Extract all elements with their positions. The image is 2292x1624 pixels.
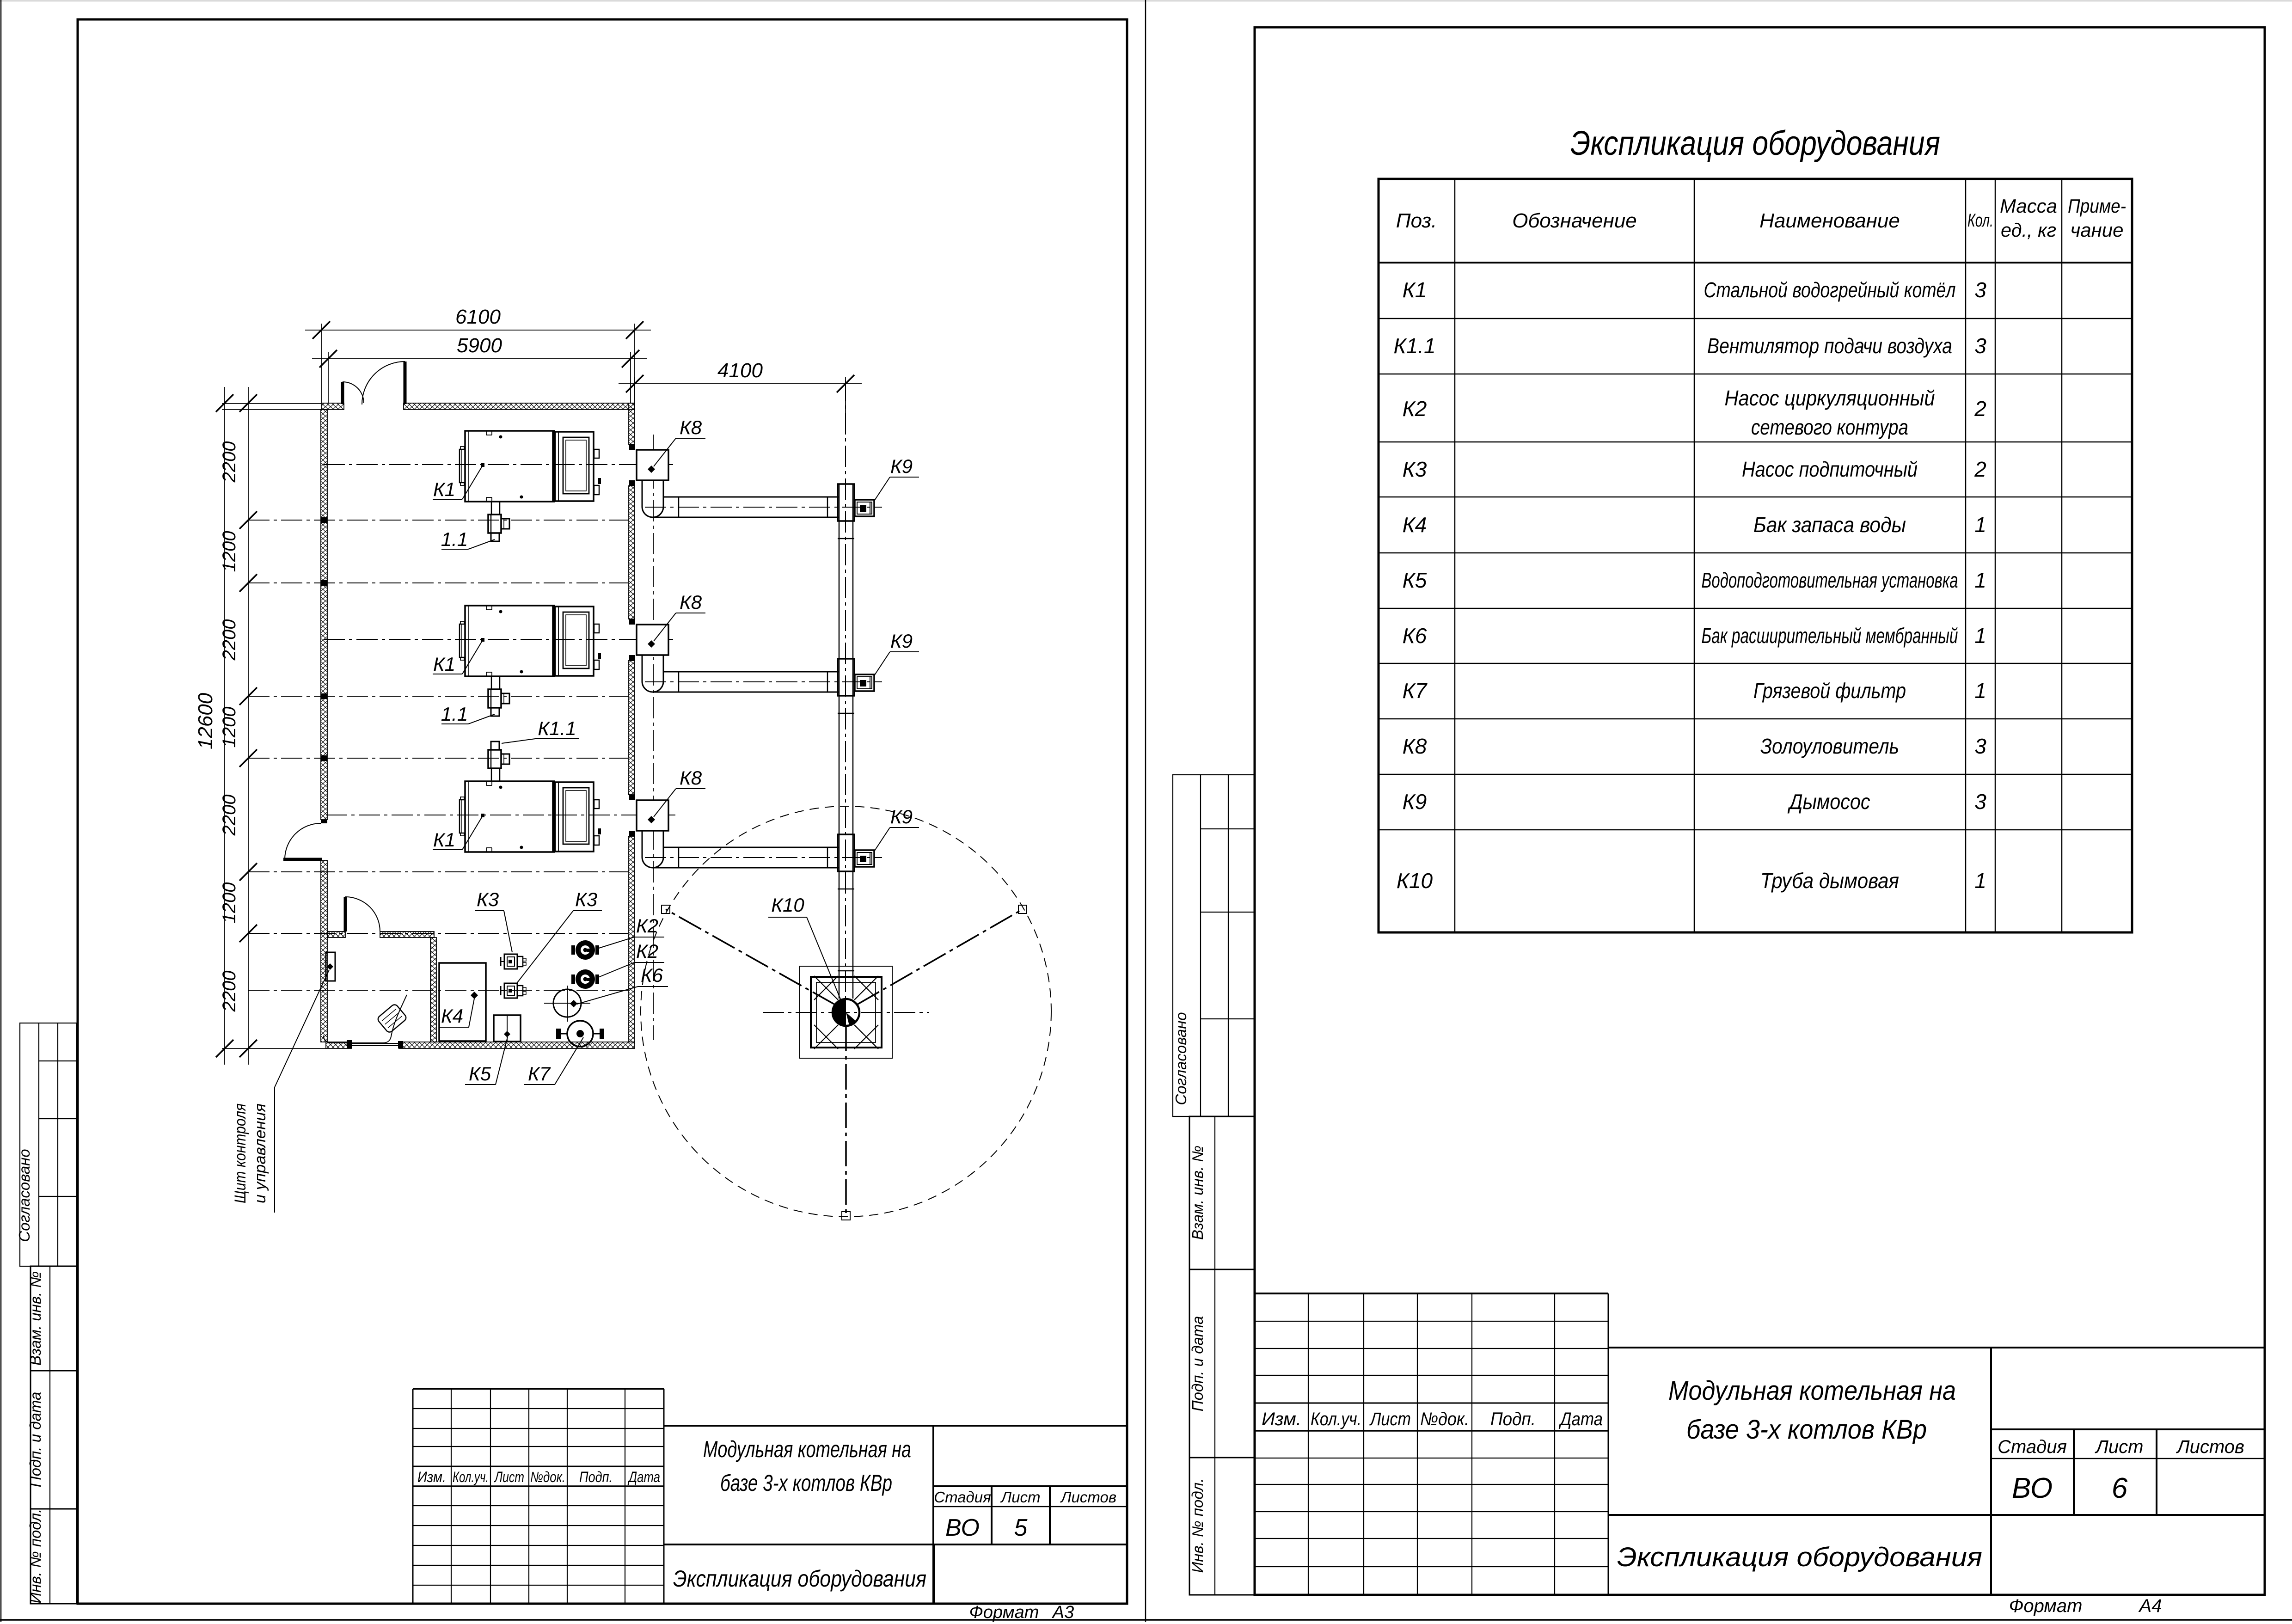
- svg-text:К5: К5: [469, 1063, 491, 1085]
- svg-text:ед., кг: ед., кг: [2001, 219, 2056, 241]
- svg-text:К7: К7: [1403, 679, 1428, 703]
- svg-text:Масса: Масса: [2000, 195, 2057, 217]
- svg-text:базе 3-х котлов КВр: базе 3-х котлов КВр: [1686, 1415, 1927, 1445]
- svg-text:Подп.: Подп.: [1490, 1409, 1536, 1429]
- svg-text:Подп. и дата: Подп. и дата: [1189, 1316, 1206, 1412]
- svg-text:3: 3: [1974, 734, 1986, 758]
- svg-text:Бак запаса воды: Бак запаса воды: [1753, 513, 1906, 537]
- svg-text:Золоуловитель: Золоуловитель: [1760, 734, 1899, 758]
- svg-text:Стадия: Стадия: [934, 1489, 991, 1506]
- svg-text:Лист: Лист: [494, 1469, 524, 1485]
- svg-text:1: 1: [1974, 568, 1986, 592]
- svg-text:Поз.: Поз.: [1396, 209, 1437, 232]
- svg-text:Труба дымовая: Труба дымовая: [1760, 869, 1899, 893]
- svg-text:Согласовано: Согласовано: [16, 1149, 33, 1242]
- svg-text:1200: 1200: [219, 882, 239, 924]
- svg-text:Листов: Листов: [2176, 1437, 2244, 1457]
- svg-text:К2: К2: [636, 940, 658, 962]
- svg-text:К4: К4: [1403, 513, 1427, 537]
- svg-text:К1.1: К1.1: [1393, 334, 1435, 358]
- svg-text:Изм.: Изм.: [417, 1469, 446, 1485]
- svg-text:К9: К9: [1403, 790, 1427, 814]
- svg-text:Водоподготовительная установка: Водоподготовительная установка: [1702, 568, 1958, 592]
- svg-text:ВО: ВО: [2012, 1472, 2053, 1504]
- svg-text:Лист: Лист: [1369, 1409, 1411, 1429]
- svg-text:Кол.уч.: Кол.уч.: [1311, 1409, 1361, 1429]
- svg-text:К3: К3: [575, 889, 597, 910]
- svg-text:К5: К5: [1403, 568, 1427, 592]
- svg-text:К1.1: К1.1: [538, 717, 576, 739]
- svg-text:12600: 12600: [194, 692, 217, 749]
- svg-text:Щит контроля: Щит контроля: [232, 1103, 249, 1203]
- svg-text:базе 3-х котлов КВр: базе 3-х котлов КВр: [720, 1470, 892, 1496]
- svg-text:1.1: 1.1: [441, 703, 468, 725]
- svg-text:А4: А4: [2139, 1596, 2162, 1616]
- svg-text:Модульная котельная на: Модульная котельная на: [703, 1436, 911, 1462]
- svg-text:чание: чание: [2071, 219, 2124, 241]
- svg-text:Формат: Формат: [969, 1603, 1039, 1622]
- svg-text:К6: К6: [1403, 624, 1427, 648]
- svg-text:Дымосос: Дымосос: [1787, 790, 1870, 814]
- svg-text:2200: 2200: [219, 971, 239, 1012]
- svg-text:1: 1: [1974, 624, 1986, 648]
- svg-text:3: 3: [1974, 278, 1986, 302]
- svg-text:Кол.уч.: Кол.уч.: [453, 1469, 489, 1485]
- svg-text:1: 1: [1974, 869, 1986, 893]
- svg-text:Наименование: Наименование: [1759, 209, 1900, 232]
- svg-text:3: 3: [1974, 790, 1986, 814]
- svg-text:Экспликация оборудования: Экспликация оборудования: [673, 1566, 926, 1592]
- svg-text:Стальной водогрейный котёл: Стальной водогрейный котёл: [1704, 278, 1956, 302]
- svg-text:Насос циркуляционный: Насос циркуляционный: [1725, 386, 1935, 410]
- svg-text:Инв. № подл.: Инв. № подл.: [27, 1509, 44, 1604]
- svg-text:Взам. инв. №: Взам. инв. №: [27, 1271, 44, 1366]
- svg-text:5: 5: [1014, 1514, 1028, 1541]
- svg-text:Лист: Лист: [2095, 1437, 2144, 1457]
- svg-text:Экспликация оборудования: Экспликация оборудования: [1570, 124, 1940, 162]
- svg-text:Обозначение: Обозначение: [1512, 209, 1637, 232]
- svg-text:Вентилятор подачи воздуха: Вентилятор подачи воздуха: [1707, 334, 1952, 358]
- svg-text:К10: К10: [771, 894, 804, 916]
- svg-text:Взам. инв. №: Взам. инв. №: [1189, 1146, 1206, 1240]
- svg-text:Дата: Дата: [1559, 1409, 1603, 1429]
- svg-text:Листов: Листов: [1060, 1489, 1116, 1506]
- svg-text:1200: 1200: [219, 531, 239, 572]
- svg-text:6100: 6100: [455, 306, 501, 328]
- svg-text:6: 6: [2112, 1472, 2128, 1504]
- svg-text:Экспликация оборудования: Экспликация оборудования: [1617, 1542, 1982, 1572]
- svg-text:Грязевой фильтр: Грязевой фильтр: [1753, 679, 1906, 703]
- svg-text:Подп.: Подп.: [579, 1469, 613, 1485]
- svg-text:2: 2: [1974, 397, 1986, 421]
- svg-text:№док.: №док.: [1420, 1409, 1469, 1429]
- svg-text:3: 3: [1974, 334, 1986, 358]
- svg-text:2200: 2200: [219, 619, 239, 661]
- svg-text:№док.: №док.: [530, 1469, 565, 1485]
- svg-text:ВО: ВО: [945, 1514, 980, 1541]
- svg-text:К4: К4: [441, 1005, 463, 1027]
- svg-text:4100: 4100: [717, 359, 763, 382]
- svg-text:2200: 2200: [219, 441, 239, 483]
- svg-text:К6: К6: [641, 964, 663, 986]
- svg-text:К3: К3: [1403, 457, 1427, 481]
- svg-text:2200: 2200: [219, 795, 239, 836]
- svg-text:2: 2: [1974, 457, 1986, 481]
- svg-text:Дата: Дата: [628, 1469, 660, 1485]
- svg-text:К1: К1: [1403, 278, 1427, 302]
- svg-text:5900: 5900: [457, 334, 502, 357]
- svg-text:Насос подпиточный: Насос подпиточный: [1742, 457, 1918, 481]
- svg-text:Кол.: Кол.: [1967, 210, 1993, 231]
- svg-text:и управления: и управления: [251, 1103, 269, 1203]
- svg-text:Бак расширительный мембранный: Бак расширительный мембранный: [1702, 624, 1958, 648]
- svg-text:Подп. и дата: Подп. и дата: [27, 1392, 44, 1488]
- svg-text:К3: К3: [477, 889, 499, 910]
- svg-text:К8: К8: [1403, 734, 1427, 758]
- svg-text:1.1: 1.1: [441, 528, 468, 550]
- svg-text:Стадия: Стадия: [1998, 1437, 2067, 1457]
- svg-text:А3: А3: [1052, 1603, 1074, 1622]
- svg-text:1: 1: [1974, 679, 1986, 703]
- svg-text:К7: К7: [528, 1063, 551, 1085]
- svg-text:сетевого контура: сетевого контура: [1751, 415, 1908, 439]
- svg-text:К10: К10: [1397, 869, 1433, 893]
- svg-text:1: 1: [1974, 513, 1986, 537]
- svg-text:Изм.: Изм.: [1262, 1409, 1301, 1429]
- svg-text:К2: К2: [1403, 397, 1427, 421]
- svg-text:Приме-: Приме-: [2068, 195, 2126, 217]
- svg-text:Модульная котельная на: Модульная котельная на: [1668, 1376, 1956, 1406]
- svg-text:Инв. № подл.: Инв. № подл.: [1189, 1478, 1206, 1573]
- svg-text:1200: 1200: [219, 707, 239, 748]
- svg-text:Согласовано: Согласовано: [1172, 1012, 1189, 1105]
- svg-text:Лист: Лист: [1000, 1489, 1041, 1506]
- svg-text:Формат: Формат: [2009, 1596, 2083, 1616]
- svg-text:К2: К2: [636, 915, 658, 937]
